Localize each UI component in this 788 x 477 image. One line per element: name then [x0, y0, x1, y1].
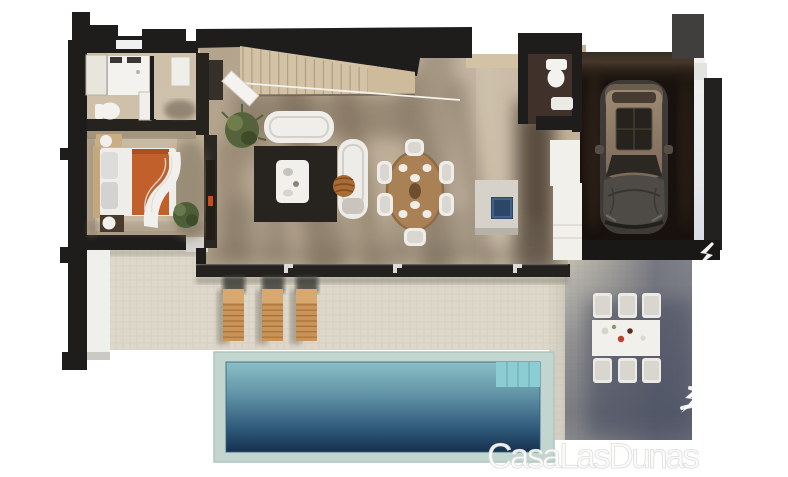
svg-text:CasaLasDunas: CasaLasDunas	[487, 437, 699, 476]
